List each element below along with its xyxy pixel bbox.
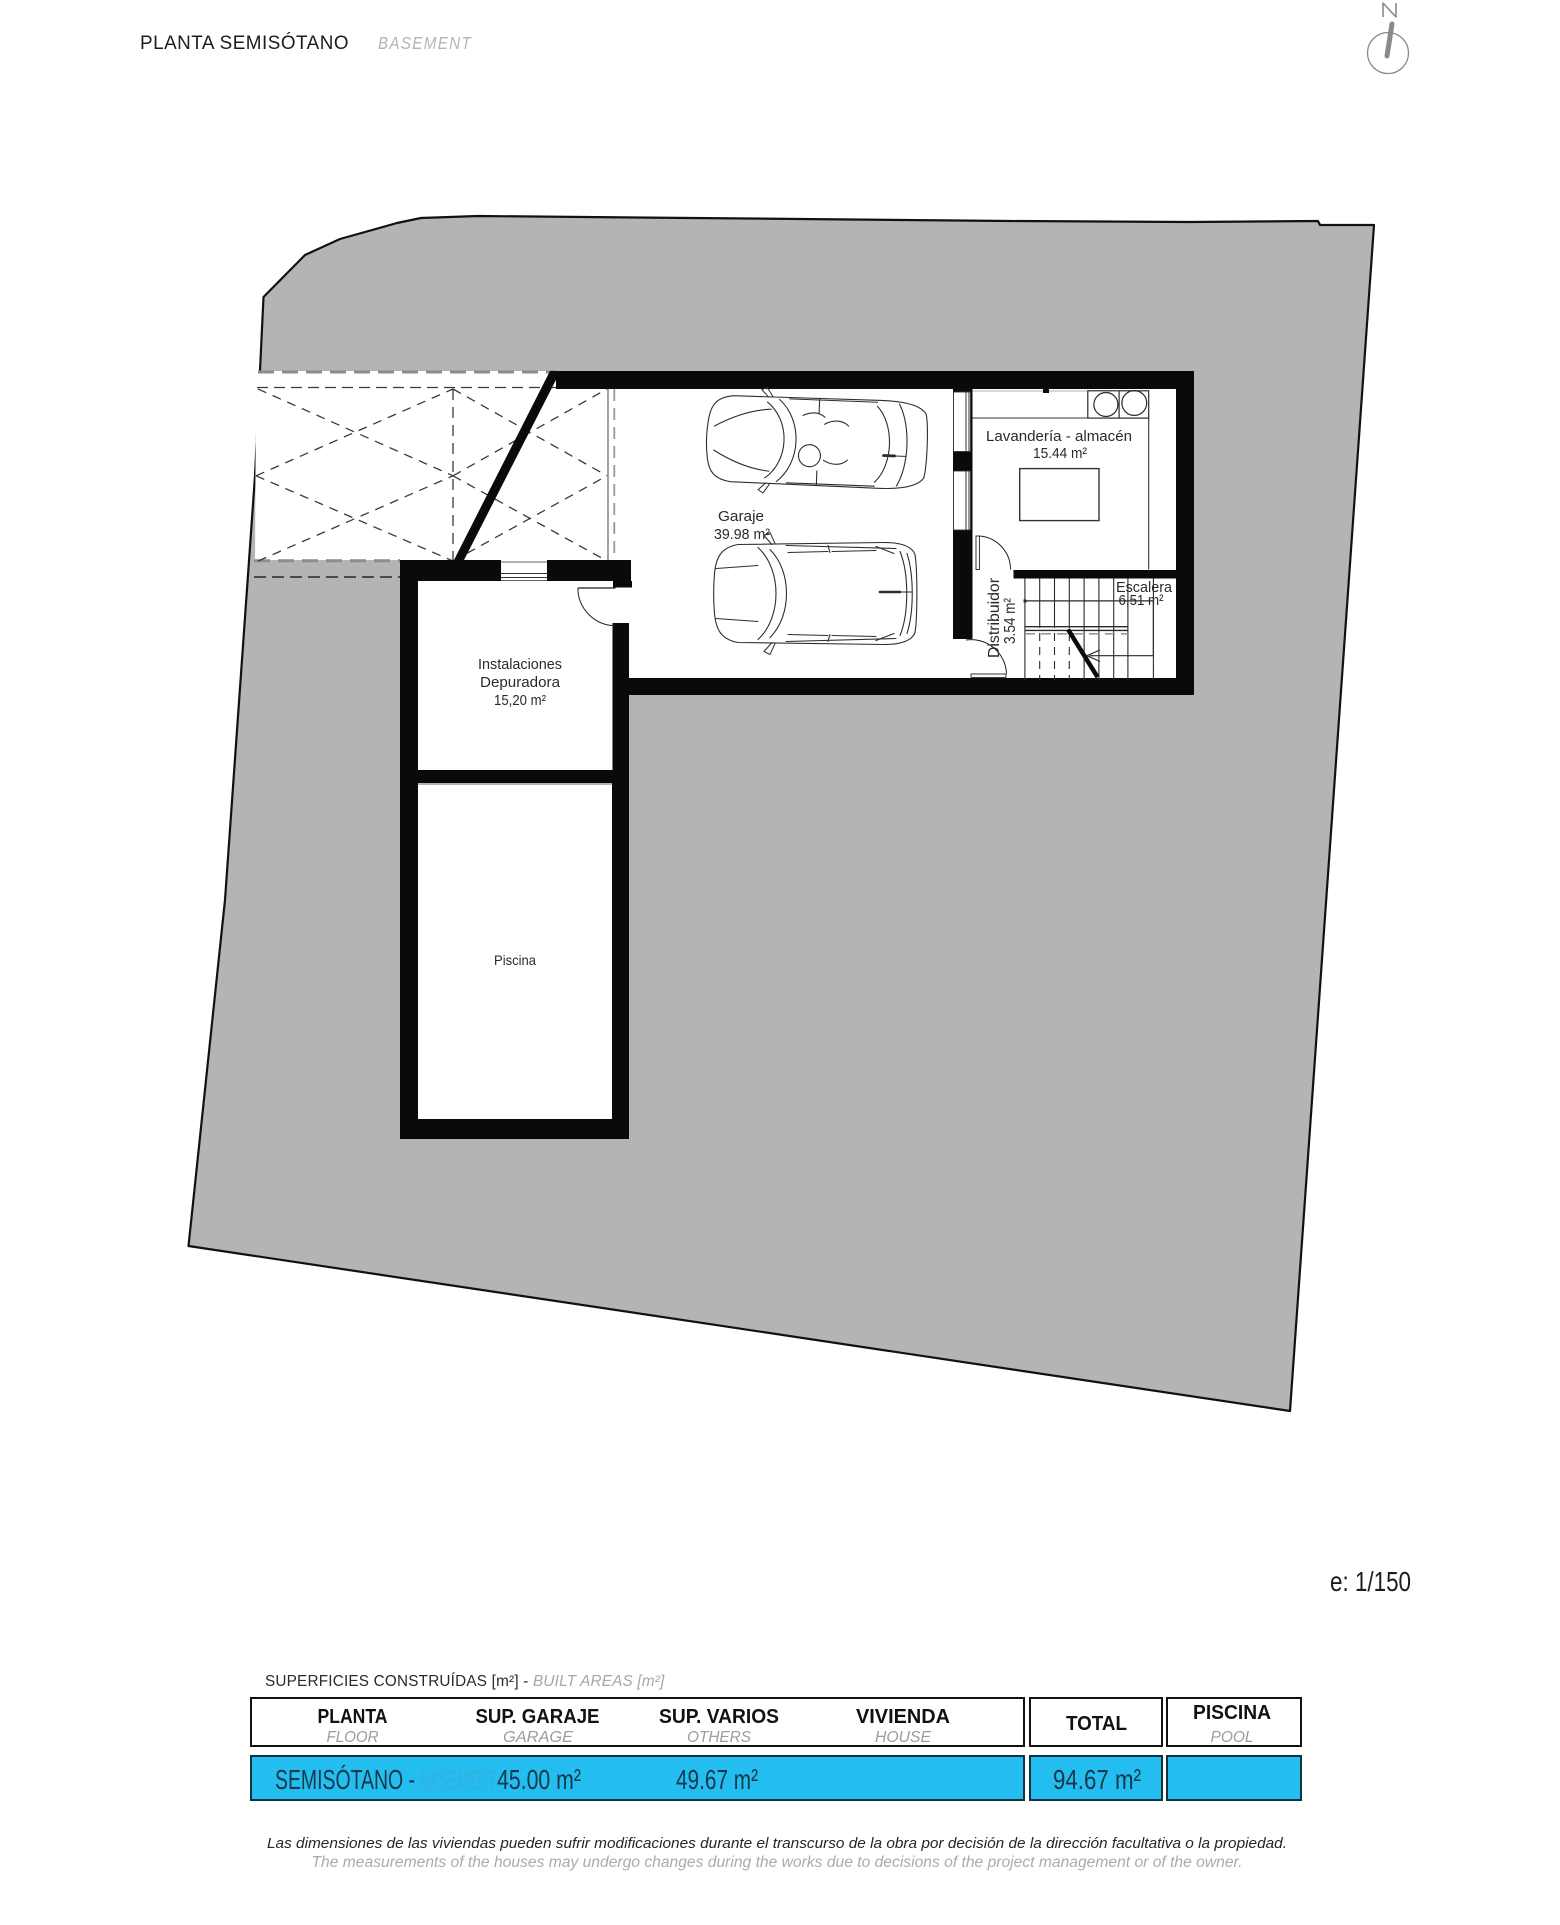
svg-text:15.44 m²: 15.44 m² xyxy=(1033,445,1087,462)
svg-text:Las dimensiones de las viviend: Las dimensiones de las viviendas pueden … xyxy=(267,1835,1287,1852)
svg-text:Piscina: Piscina xyxy=(494,952,536,968)
svg-text:49.67 m²: 49.67 m² xyxy=(676,1764,758,1795)
svg-text:Lavandería - almacén: Lavandería - almacén xyxy=(986,428,1132,445)
svg-text:BASEMENT: BASEMENT xyxy=(420,1767,496,1795)
svg-text:BASEMENT: BASEMENT xyxy=(378,33,472,53)
svg-text:SUP. VARIOS: SUP. VARIOS xyxy=(659,1706,779,1728)
svg-text:PLANTA SEMISÓTANO: PLANTA SEMISÓTANO xyxy=(140,32,349,54)
svg-text:FLOOR: FLOOR xyxy=(327,1729,379,1746)
svg-text:45.00 m²: 45.00 m² xyxy=(497,1764,581,1795)
svg-text:OTHERS: OTHERS xyxy=(687,1729,751,1746)
svg-text:PISCINA: PISCINA xyxy=(1193,1702,1271,1724)
svg-text:HOUSE: HOUSE xyxy=(875,1729,931,1746)
svg-text:Garaje: Garaje xyxy=(718,508,764,525)
svg-text:SEMISÓTANO -: SEMISÓTANO - xyxy=(275,1764,415,1795)
svg-text:PLANTA: PLANTA xyxy=(318,1706,388,1728)
svg-text:VIVIENDA: VIVIENDA xyxy=(856,1706,950,1728)
svg-text:94.67 m²: 94.67 m² xyxy=(1053,1764,1141,1795)
svg-text:SUP. GARAJE: SUP. GARAJE xyxy=(476,1706,600,1728)
svg-text:3.54 m²: 3.54 m² xyxy=(1002,597,1019,644)
svg-text:Depuradora: Depuradora xyxy=(480,675,561,691)
svg-text:Instalaciones: Instalaciones xyxy=(478,657,562,673)
svg-text:15,20 m²: 15,20 m² xyxy=(494,693,546,709)
svg-text:TOTAL: TOTAL xyxy=(1066,1713,1127,1735)
svg-text:The measurements of the houses: The measurements of the houses may under… xyxy=(312,1854,1243,1871)
svg-text:39.98 m²: 39.98 m² xyxy=(714,526,770,543)
svg-text:6,51 m²: 6,51 m² xyxy=(1119,592,1164,609)
svg-text:SUPERFICIES CONSTRUÍDAS [m²] -: SUPERFICIES CONSTRUÍDAS [m²] - BUILT ARE… xyxy=(265,1673,665,1690)
svg-text:Distribuidor: Distribuidor xyxy=(986,577,1003,658)
svg-text:e: 1/150: e: 1/150 xyxy=(1330,1566,1411,1597)
svg-text:GARAGE: GARAGE xyxy=(503,1729,573,1746)
svg-text:POOL: POOL xyxy=(1211,1729,1254,1746)
